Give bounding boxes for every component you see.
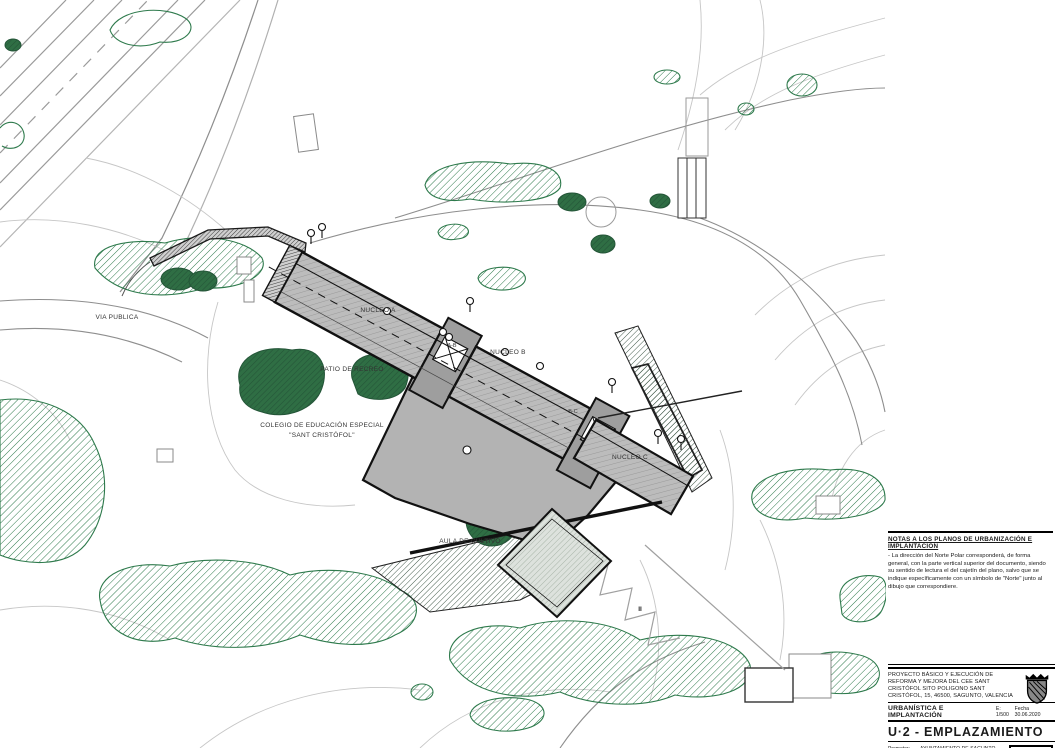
title-block: PROYECTO BÁSICO Y EJECUCIÓN DE REFORMA Y… <box>888 664 1055 748</box>
label-patio: PATIO DE RECREO <box>320 366 384 373</box>
site-plan-drawing: VIA PUBLICA PATIO DE RECREO COLEGIO DE E… <box>0 0 1055 748</box>
label-link-ab: A-B <box>447 343 457 349</box>
label-nucleo-b: NUCLEO B <box>490 349 526 356</box>
plan-sheet: VIA PUBLICA PATIO DE RECREO COLEGIO DE E… <box>0 0 1055 748</box>
project-title: PROYECTO BÁSICO Y EJECUCIÓN DE REFORMA Y… <box>888 672 1014 700</box>
date-label: Fecha 30.06.2020 <box>1015 706 1055 718</box>
discipline-row: URBANÍSTICA E IMPLANTACIÓN E: 1/500 Fech… <box>888 702 1055 720</box>
notes-title: NOTAS A LOS PLANOS DE URBANIZACIÓN E IMP… <box>888 536 1053 550</box>
label-colegio-line2: "SANT CRISTÓFOL" <box>289 430 355 439</box>
label-height-marker: II <box>638 606 642 613</box>
label-via-publica: VIA PUBLICA <box>95 314 138 321</box>
discipline-label: URBANÍSTICA E IMPLANTACIÓN <box>888 705 996 719</box>
promoter-row: Promotor: AYUNTAMIENTO DE SAGUNTO CIF.: … <box>888 744 1000 748</box>
sheet-code: U·2 - EMPLAZAMIENTO <box>888 720 1055 741</box>
scale-label: E: 1/500 <box>996 706 1015 718</box>
notes-box: NOTAS A LOS PLANOS DE URBANIZACIÓN E IMP… <box>888 531 1053 591</box>
label-link-bc: B-C <box>568 409 578 415</box>
label-aula: AULA DE CULTIVO <box>439 538 500 545</box>
sagunto-crest-icon <box>1021 672 1053 704</box>
label-nucleo-a: NUCLEO A <box>360 307 396 314</box>
right-margin <box>886 0 1055 748</box>
notes-body: - La dirección del Norte Polar correspon… <box>888 553 1053 591</box>
people-rows: Promotor: AYUNTAMIENTO DE SAGUNTO CIF.: … <box>888 741 1055 748</box>
label-colegio-line1: COLEGIO DE EDUCACIÓN ESPECIAL <box>260 420 384 429</box>
label-nucleo-c: NUCLEO C <box>612 454 648 461</box>
titleblock-top-rule <box>888 664 1055 669</box>
notes-top-rule <box>888 531 1053 533</box>
